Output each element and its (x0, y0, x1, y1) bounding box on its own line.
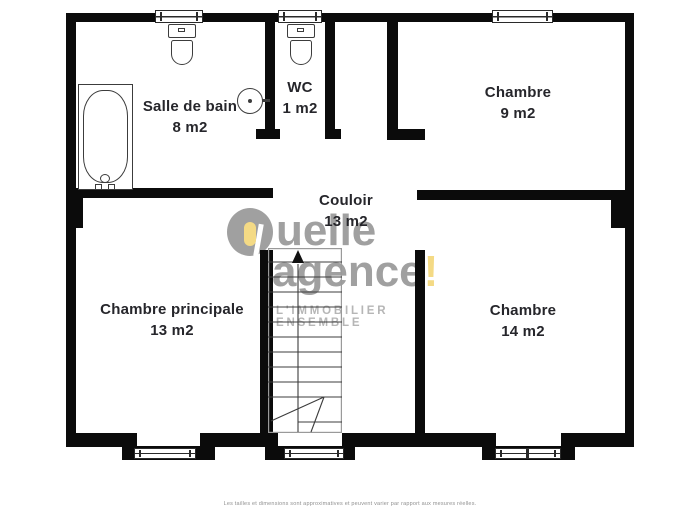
logo-exclamation: ! (424, 247, 439, 296)
room-label-couloir: Couloir 13 m2 (286, 190, 406, 233)
wall-pilaster-left (76, 198, 83, 228)
wall-nook-right-jamb (387, 129, 425, 140)
room-name: Salle de bain (110, 96, 270, 117)
room-area: 13 m2 (52, 320, 292, 341)
room-label-chambre-haut: Chambre 9 m2 (448, 82, 588, 125)
window-bathroom (155, 10, 203, 23)
wall-bottom-seg4 (425, 433, 482, 447)
window-chambre-bas-mullion (526, 449, 529, 458)
wall-bottom-seg3 (342, 433, 425, 447)
window-chambre-haut (492, 10, 553, 23)
window-stairs (284, 448, 344, 459)
room-name: Chambre (453, 300, 593, 321)
room-label-chambre-principale: Chambre principale 13 m2 (52, 299, 292, 342)
toilet-bowl (290, 40, 312, 65)
toilet-button (178, 28, 185, 32)
room-area: 9 m2 (448, 103, 588, 124)
wall-wc-right-jamb (325, 129, 341, 139)
wall-bottom-seg1 (66, 433, 122, 447)
wall-left (66, 13, 76, 447)
wall-pilaster-right (611, 200, 625, 228)
bathtub-faucet-foot-left (95, 184, 102, 190)
disclaimer-text: Les tailles et dimensions sont approxima… (0, 501, 700, 507)
toilet-bowl (171, 40, 193, 65)
window-wc (278, 10, 322, 23)
arrow-up-icon (292, 250, 304, 263)
bathtub-faucet-foot-right (108, 184, 115, 190)
room-name: Chambre (448, 82, 588, 103)
wall-chambre-divider (417, 190, 625, 200)
toilet-button (297, 28, 304, 32)
room-area: 8 m2 (110, 117, 270, 138)
window-chambre-principale (134, 448, 196, 459)
room-area: 14 m2 (453, 321, 593, 342)
wall-hall-right (415, 250, 425, 435)
room-area: 1 m2 (272, 98, 328, 119)
wall-bottom-seg2 (200, 433, 265, 447)
room-label-salle-de-bain: Salle de bain 8 m2 (110, 96, 270, 139)
room-name: Couloir (286, 190, 406, 211)
wall-nook-right (387, 21, 398, 129)
wall-bottom-seg5 (561, 433, 633, 447)
room-name: WC (272, 77, 328, 98)
bathtub-faucet-knob (100, 174, 110, 183)
room-label-chambre-bas: Chambre 14 m2 (453, 300, 593, 343)
room-area: 13 m2 (286, 211, 406, 232)
logo-q-bar (244, 222, 256, 246)
floor-plan: uelle agence! L'IMMOBILIER ENSEMBLE (0, 0, 700, 525)
room-name: Chambre principale (52, 299, 292, 320)
room-label-wc: WC 1 m2 (272, 77, 328, 120)
wall-right (625, 13, 634, 447)
